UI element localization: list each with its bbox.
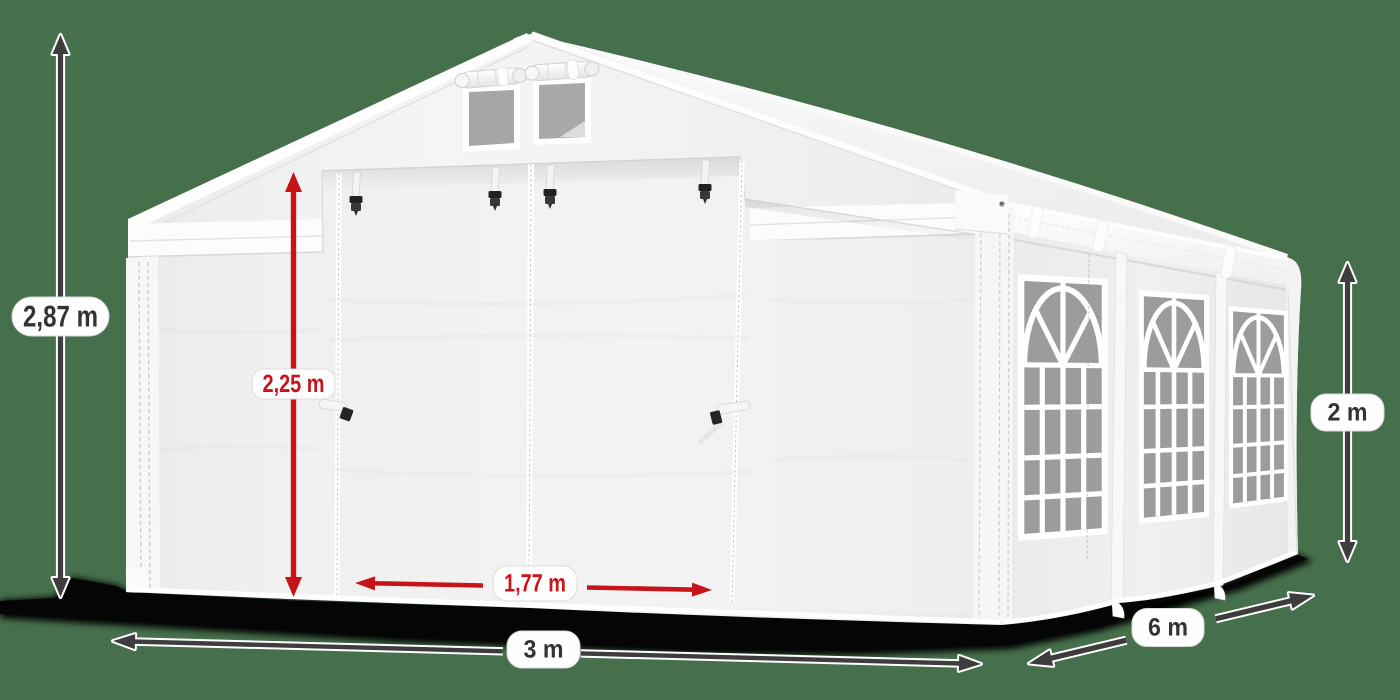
svg-text:1,77 m: 1,77 m: [504, 570, 566, 598]
svg-text:2 m: 2 m: [1328, 399, 1368, 427]
svg-text:3 m: 3 m: [524, 636, 564, 664]
svg-text:2,87 m: 2,87 m: [23, 300, 98, 333]
svg-text:6 m: 6 m: [1148, 614, 1188, 642]
svg-text:2,25 m: 2,25 m: [263, 370, 325, 398]
